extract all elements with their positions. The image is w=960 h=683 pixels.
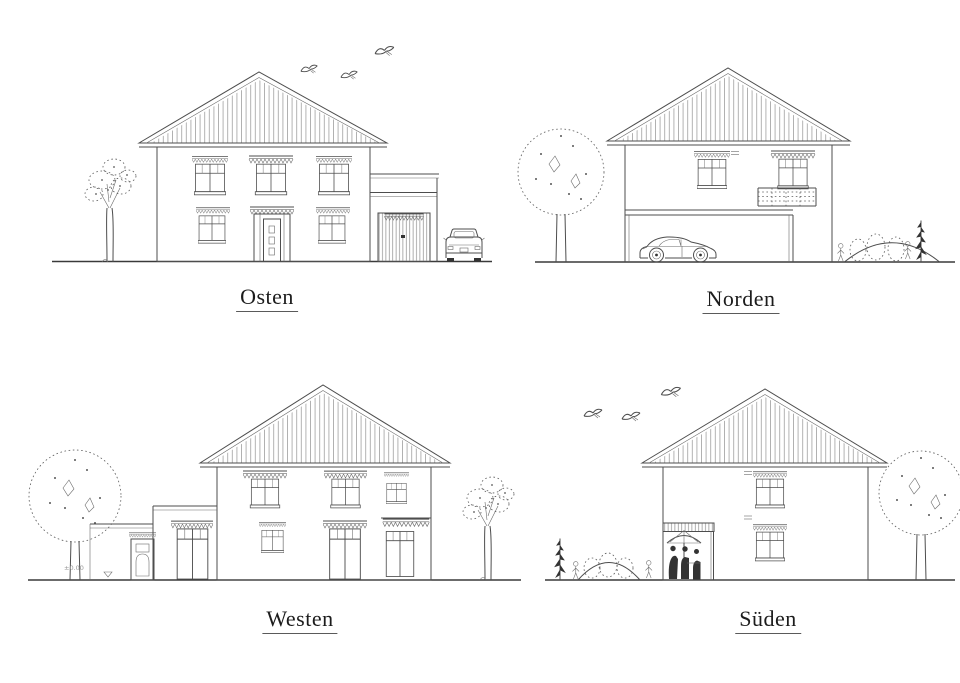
lower-windows bbox=[196, 208, 350, 243]
person-icon bbox=[837, 244, 844, 261]
house-wall bbox=[625, 145, 832, 262]
elevations-drawing bbox=[0, 0, 960, 683]
upper-windows bbox=[192, 156, 352, 195]
sports-car-icon bbox=[640, 237, 716, 262]
garage bbox=[370, 174, 439, 262]
balcony-railing bbox=[758, 188, 816, 206]
elevation-sheet: Osten Norden Westen Süden ±0.00 bbox=[0, 0, 960, 683]
conifer-icon bbox=[915, 220, 927, 262]
label-osten: Osten bbox=[236, 284, 298, 312]
garden-arch-icon bbox=[572, 553, 652, 580]
gable-roof bbox=[200, 385, 450, 467]
tree-icon bbox=[518, 129, 604, 262]
people-umbrella-icon bbox=[667, 531, 701, 580]
person-icon bbox=[904, 242, 911, 259]
tree-icon bbox=[879, 451, 960, 580]
ground-floor-windows bbox=[259, 518, 431, 579]
garden-arch-icon bbox=[837, 234, 939, 262]
car-rear-icon bbox=[444, 229, 485, 262]
person-icon bbox=[645, 561, 652, 578]
label-sueden: Süden bbox=[735, 606, 801, 634]
osten-elevation bbox=[52, 47, 492, 262]
gable-roof bbox=[642, 389, 887, 467]
person-icon bbox=[572, 562, 579, 579]
side-door bbox=[129, 533, 156, 580]
tree-icon bbox=[85, 159, 136, 262]
westen-elevation bbox=[28, 385, 521, 580]
gable-roof bbox=[607, 68, 850, 145]
tree-icon bbox=[463, 477, 514, 580]
gable-roof bbox=[139, 72, 387, 147]
birds-icon bbox=[301, 47, 394, 80]
label-norden: Norden bbox=[703, 286, 780, 314]
annex bbox=[90, 506, 217, 580]
carport bbox=[625, 210, 793, 262]
birds-icon bbox=[584, 387, 681, 421]
datum-annotation: ±0.00 bbox=[64, 564, 84, 572]
upper-windows bbox=[243, 471, 409, 508]
conifer-icon bbox=[554, 538, 566, 580]
upper-windows bbox=[694, 151, 815, 189]
norden-elevation bbox=[518, 68, 955, 262]
sueden-elevation bbox=[545, 387, 960, 580]
front-door bbox=[250, 207, 294, 262]
tree-icon bbox=[29, 450, 121, 580]
label-westen: Westen bbox=[262, 606, 337, 634]
windows bbox=[744, 472, 787, 561]
